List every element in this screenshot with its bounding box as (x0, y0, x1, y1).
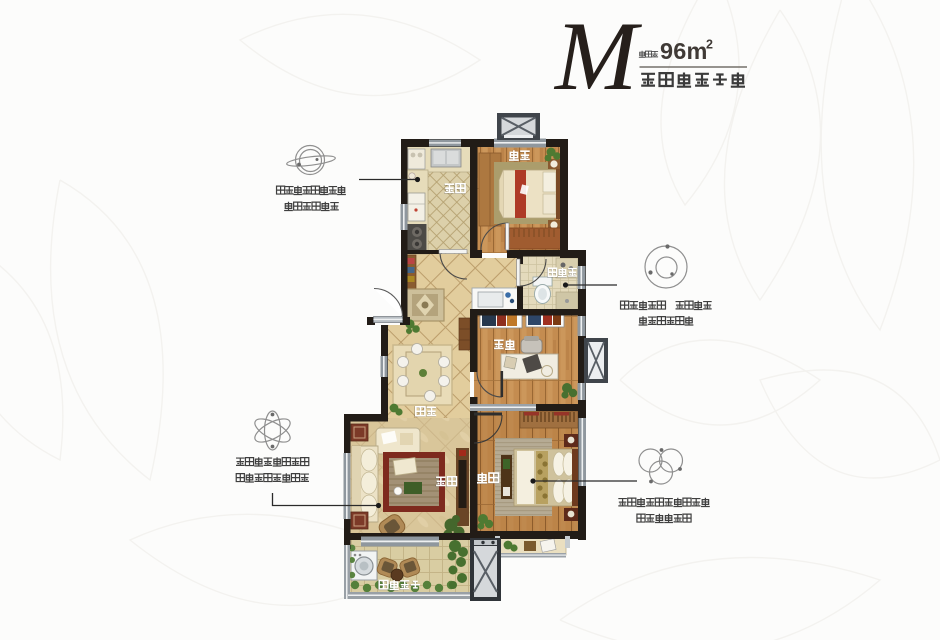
svg-text:2: 2 (706, 38, 713, 52)
svg-text:96m: 96m (660, 38, 708, 64)
svg-text:M: M (553, 2, 643, 111)
